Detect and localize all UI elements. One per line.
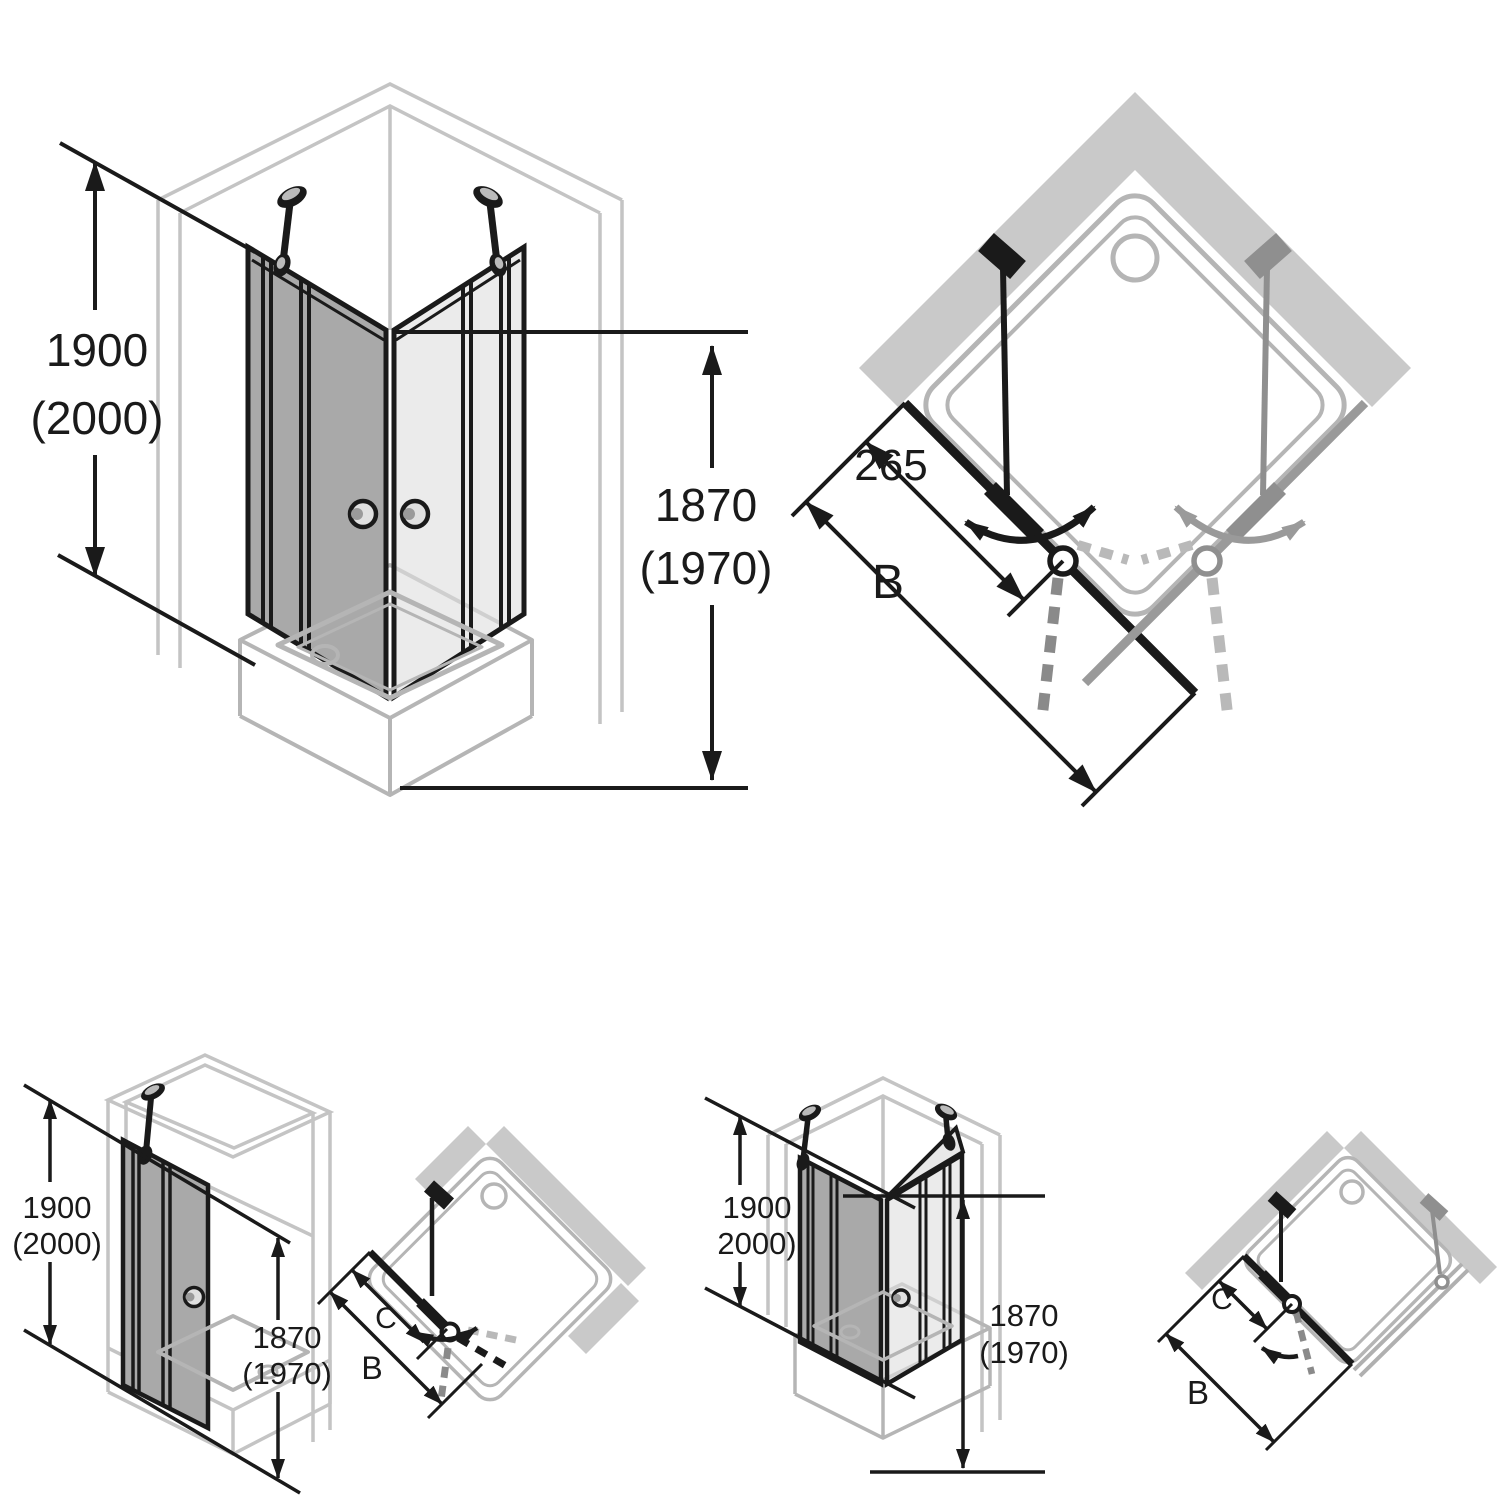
glass-door-left [800,1158,881,1384]
dim-height-total-alt: 2000) [717,1226,796,1261]
drain [1113,236,1157,280]
dim-height-total-value: 1900 [23,1190,92,1225]
diagram-corner-door-plan: C B [1158,1131,1497,1450]
drain [1341,1181,1363,1203]
diagram-corner-entry-iso: 1900 (2000) 1870 (1970) [31,84,773,795]
glass-panel-right [394,247,524,697]
door-knob-icon [185,1288,204,1307]
room-walls [158,84,622,724]
technical-drawing: 1900 (2000) 1870 (1970) [0,0,1500,1500]
dim-width-value: B [361,1350,382,1386]
dim-width-value: B [872,556,904,609]
dim-height-door-alt: (1970) [242,1356,332,1391]
dim-height-door-value: 1870 [655,479,757,531]
dimension-width: B [1158,1256,1352,1450]
diagram-niche-door-plan: C B [318,1126,646,1418]
dim-pivot-offset-value: C [375,1302,397,1335]
dim-height-total-value: 1900 [723,1190,792,1225]
support-bar-right-icon [470,182,510,279]
diagram-corner-door-iso: 1900 2000) 1870 (1970) [705,1078,1069,1472]
door-open-position [441,1348,448,1400]
diagram-niche-door-iso: 1900 (2000) 1870 (1970) [12,1055,332,1493]
support-rod [1263,268,1267,495]
dim-height-total-alt: (2000) [12,1226,102,1261]
support-rod [1003,268,1007,495]
door-open-position [1042,578,1058,718]
dim-height-door-value: 1870 [253,1320,322,1355]
swing-arrow [1262,1348,1298,1357]
door-knob-left-icon [350,501,376,527]
glass-door [123,1140,208,1428]
dim-pivot-offset-value: 265 [854,441,927,490]
door-knob-icon [893,1290,909,1306]
diagram-corner-entry-plan: 265 B [792,92,1411,806]
diagram-sheet: 1900 (2000) 1870 (1970) [0,0,1500,1500]
glass-side-panel [886,1128,963,1384]
dimension-width: B [806,502,1195,806]
hinge-pivot [1194,548,1220,574]
dim-height-total-alt: (2000) [31,392,164,444]
dim-height-total-value: 1900 [46,324,148,376]
drain [482,1184,506,1208]
door-open-position [1212,578,1228,718]
panel-fitting [1436,1276,1448,1288]
door-knob-right-icon [402,501,428,527]
glass-panel-left [248,247,386,697]
plan-walls [415,1126,646,1354]
dim-height-door-value: 1870 [990,1298,1059,1333]
dim-height-door-alt: (1970) [979,1335,1069,1370]
dim-pivot-offset-value: C [1211,1283,1233,1316]
dim-width-value: B [1187,1374,1209,1411]
plan-walls [859,92,1411,407]
dimension-height-total: 1900 (2000) [31,143,255,665]
door-tip-open [458,1338,506,1366]
support-bar-left-icon [270,182,310,279]
plan-tray [1240,1152,1456,1368]
dim-height-door-alt: (1970) [640,542,773,594]
